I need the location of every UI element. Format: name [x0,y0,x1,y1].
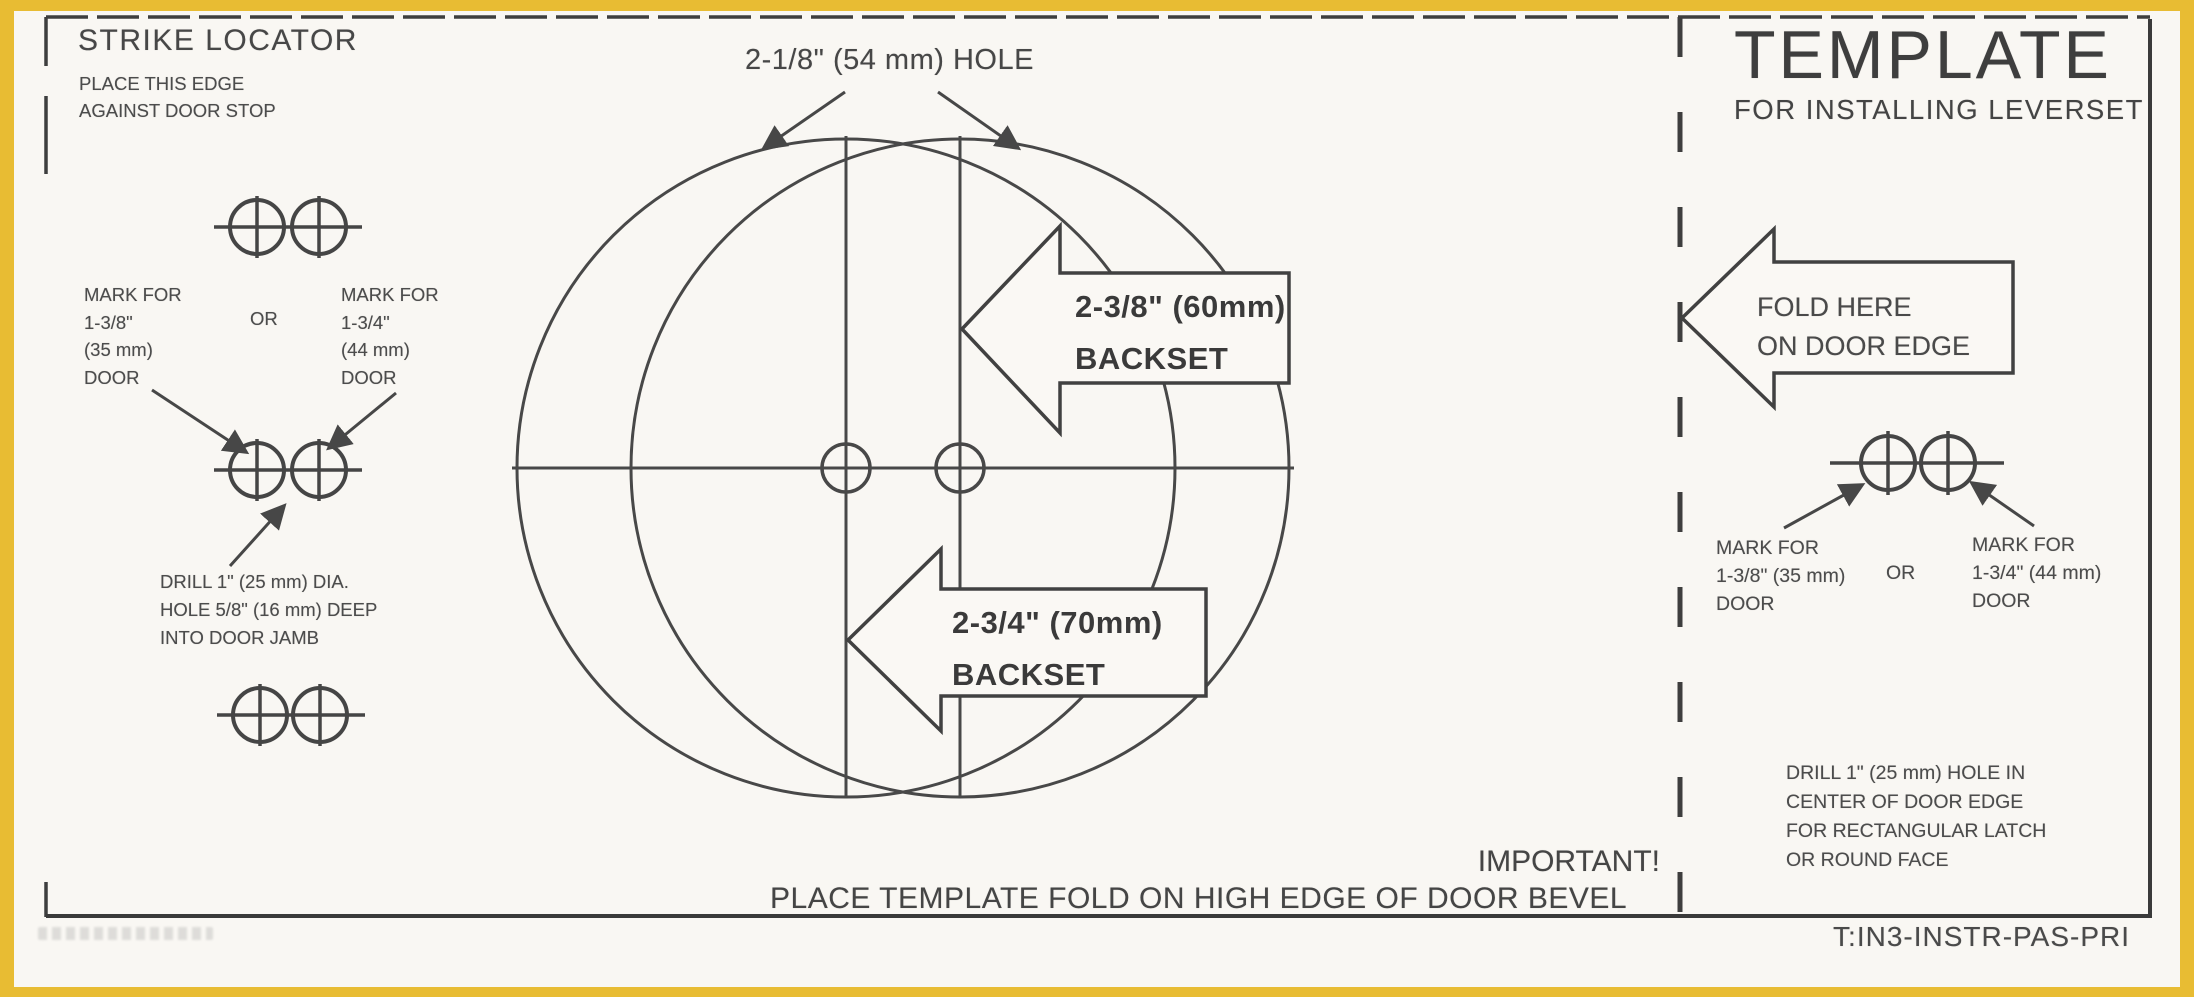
fold-here-line2: ON DOOR EDGE [1757,327,1970,366]
template-mark-right-pointer-arrow [1972,483,2034,526]
drill-jamb-line3: INTO DOOR JAMB [160,624,377,652]
template-mark-35-line2: 1-3/8" (35 mm) [1716,562,1845,590]
mark-left-pointer-arrow [152,390,246,452]
faint-watermark [38,927,213,940]
scanned-template-sheet: STRIKE LOCATOR PLACE THIS EDGE AGAINST D… [0,0,2194,997]
drill-edge-line1: DRILL 1" (25 mm) HOLE IN [1786,759,2046,788]
backset-60mm-word: BACKSET [1075,333,1286,385]
backset-60mm-label: 2-3/8" (60mm) BACKSET [1075,281,1286,385]
drill-jamb-line1: DRILL 1" (25 mm) DIA. [160,568,377,596]
drill-edge-line2: CENTER OF DOOR EDGE [1786,788,2046,817]
bevel-instruction: PLACE TEMPLATE FOLD ON HIGH EDGE OF DOOR… [770,882,1627,916]
template-mark-44-line3: DOOR [1972,587,2101,615]
mark-35-line4: DOOR [84,364,182,392]
hole-size-label: 2-1/8" (54 mm) HOLE [745,44,1034,77]
strike-crosshair-pair-top [214,196,362,258]
mark-35-line1: MARK FOR [84,281,182,309]
edge-note-line1: PLACE THIS EDGE [79,70,276,97]
important-heading: IMPORTANT! [1240,845,1660,879]
template-mark-44mm-note: MARK FOR 1-3/4" (44 mm) DOOR [1972,531,2101,615]
template-subtitle: FOR INSTALLING LEVERSET [1734,94,2144,126]
template-mark-44-line2: 1-3/4" (44 mm) [1972,559,2101,587]
strike-locator-title: STRIKE LOCATOR [78,24,358,58]
backset-70mm-size: 2-3/4" (70mm) [952,597,1163,649]
edge-note-line2: AGAINST DOOR STOP [79,97,276,124]
fold-here-label: FOLD HERE ON DOOR EDGE [1757,288,1970,366]
fold-here-line1: FOLD HERE [1757,288,1970,327]
part-code: T:IN3-INSTR-PAS-PRI [1770,921,2130,953]
template-title: TEMPLATE [1734,16,2112,94]
strike-crosshair-pair-middle [214,439,362,501]
strike-crosshair-pair-bottom [217,684,365,746]
drill-jamb-line2: HOLE 5/8" (16 mm) DEEP [160,596,377,624]
backset-60mm-size: 2-3/8" (60mm) [1075,281,1286,333]
drill-edge-line3: FOR RECTANGULAR LATCH [1786,817,2046,846]
mark-right-pointer-arrow [329,393,396,448]
mark-for-35mm-note: MARK FOR 1-3/8" (35 mm) DOOR [84,281,182,391]
mark-44-line2: 1-3/4" [341,309,439,337]
mark-35-line3: (35 mm) [84,336,182,364]
mark-44-line1: MARK FOR [341,281,439,309]
drill-edge-line4: OR ROUND FACE [1786,846,2046,875]
bore-hole-circles [512,136,1294,797]
template-mark-35mm-note: MARK FOR 1-3/8" (35 mm) DOOR [1716,534,1845,618]
drill-door-edge-note: DRILL 1" (25 mm) HOLE IN CENTER OF DOOR … [1786,759,2046,875]
template-mark-35-line3: DOOR [1716,590,1845,618]
mark-35-line2: 1-3/8" [84,309,182,337]
mark-for-44mm-note: MARK FOR 1-3/4" (44 mm) DOOR [341,281,439,391]
backset-70mm-label: 2-3/4" (70mm) BACKSET [952,597,1163,701]
edge-note: PLACE THIS EDGE AGAINST DOOR STOP [79,70,276,124]
backset-70mm-word: BACKSET [952,649,1163,701]
mark-44-line4: DOOR [341,364,439,392]
template-mark-35-line1: MARK FOR [1716,534,1845,562]
template-mark-left-pointer-arrow [1784,485,1862,528]
drill-jamb-note: DRILL 1" (25 mm) DIA. HOLE 5/8" (16 mm) … [160,568,377,652]
template-mark-44-line1: MARK FOR [1972,531,2101,559]
template-or-label: OR [1886,562,1915,585]
drill-note-pointer-arrow [230,506,284,566]
mark-44-line3: (44 mm) [341,336,439,364]
or-label: OR [250,308,278,330]
